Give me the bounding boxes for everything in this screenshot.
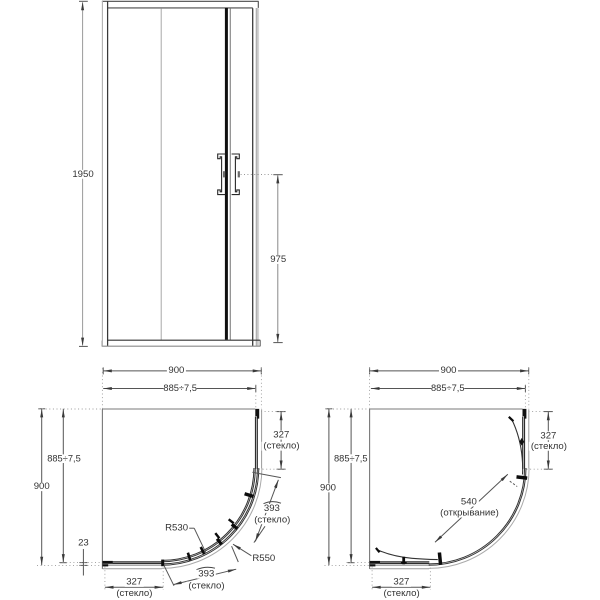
svg-text:327: 327 (126, 577, 142, 588)
svg-text:393: 393 (264, 503, 280, 514)
svg-text:R550: R550 (252, 553, 275, 564)
svg-text:885÷7,5: 885÷7,5 (163, 383, 197, 393)
svg-text:(стекло): (стекло) (254, 514, 290, 525)
svg-text:327: 327 (393, 577, 409, 588)
svg-text:975: 975 (270, 254, 286, 265)
svg-text:540: 540 (461, 497, 477, 508)
svg-text:(стекло): (стекло) (116, 588, 152, 599)
svg-text:327: 327 (540, 430, 556, 441)
svg-text:(стекло): (стекло) (263, 441, 299, 452)
svg-text:R530: R530 (165, 523, 188, 534)
svg-text:327: 327 (273, 430, 289, 441)
svg-text:(открывание): (открывание) (440, 508, 499, 519)
svg-text:(стекло): (стекло) (384, 588, 420, 599)
svg-text:900: 900 (34, 481, 50, 492)
svg-text:23: 23 (78, 538, 89, 549)
svg-text:900: 900 (440, 365, 456, 376)
svg-text:(стекло): (стекло) (188, 581, 224, 592)
svg-text:900: 900 (168, 365, 184, 376)
svg-text:885÷7,5: 885÷7,5 (431, 383, 465, 393)
svg-text:885÷7,5: 885÷7,5 (334, 454, 368, 464)
svg-text:393: 393 (198, 569, 214, 580)
svg-text:1950: 1950 (72, 169, 93, 180)
svg-text:(стекло): (стекло) (531, 441, 567, 452)
svg-text:900: 900 (320, 482, 336, 493)
svg-text:885÷7,5: 885÷7,5 (47, 454, 81, 464)
